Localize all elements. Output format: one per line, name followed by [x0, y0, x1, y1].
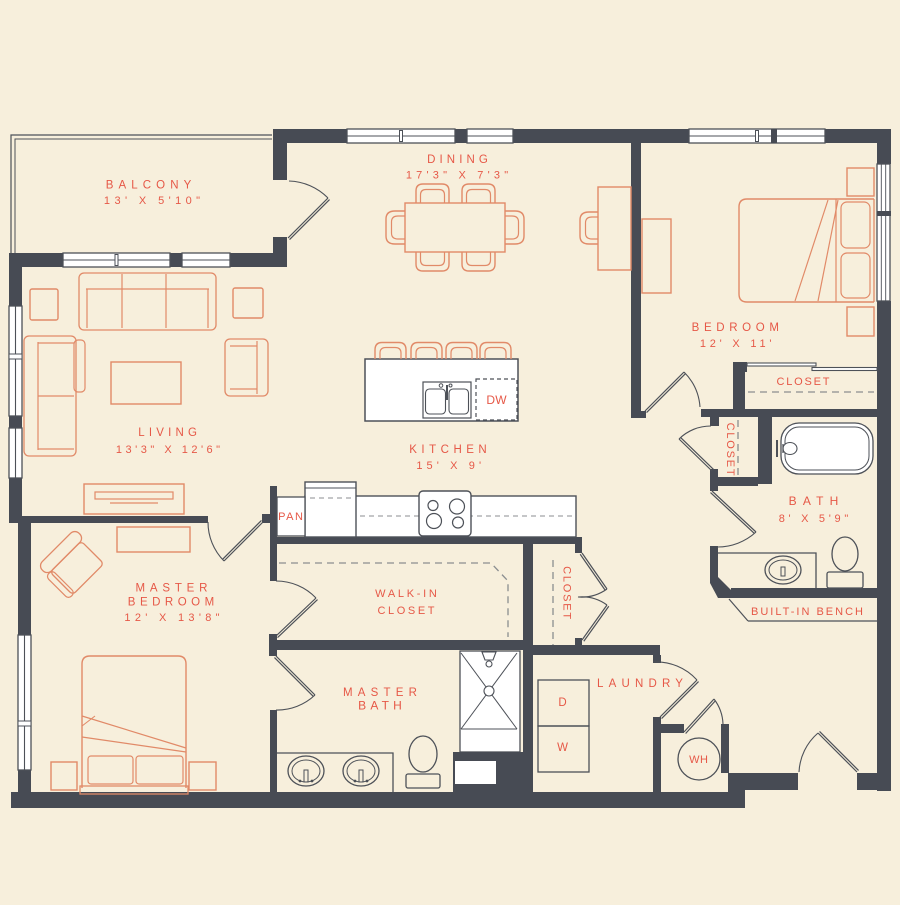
- svg-text:MASTER: MASTER: [136, 583, 213, 595]
- svg-text:BEDROOM: BEDROOM: [692, 322, 784, 334]
- svg-text:15' X 9': 15' X 9': [416, 460, 485, 472]
- svg-text:CLOSET: CLOSET: [776, 376, 831, 388]
- svg-text:CLOSET: CLOSET: [561, 566, 573, 621]
- svg-text:CLOSET: CLOSET: [377, 605, 437, 617]
- svg-text:LAUNDRY: LAUNDRY: [597, 678, 688, 690]
- svg-text:BUILT-IN BENCH: BUILT-IN BENCH: [751, 606, 865, 618]
- svg-text:LIVING: LIVING: [138, 427, 201, 439]
- svg-text:W: W: [557, 742, 568, 754]
- svg-text:13' X 5'10": 13' X 5'10": [104, 195, 205, 207]
- svg-text:MASTER: MASTER: [343, 687, 422, 699]
- svg-text:CLOSET: CLOSET: [724, 423, 736, 478]
- svg-text:KITCHEN: KITCHEN: [409, 444, 491, 456]
- svg-text:WH: WH: [689, 754, 708, 766]
- svg-text:BATH: BATH: [789, 494, 845, 508]
- svg-text:BEDROOM: BEDROOM: [128, 597, 219, 609]
- svg-text:DW: DW: [486, 393, 507, 407]
- svg-text:WALK-IN: WALK-IN: [375, 588, 439, 600]
- svg-text:12' X 13'8": 12' X 13'8": [124, 612, 223, 624]
- svg-text:13'3" X 12'6": 13'3" X 12'6": [116, 444, 224, 456]
- svg-text:17'3" X 7'3": 17'3" X 7'3": [406, 170, 512, 182]
- svg-text:8' X 5'9": 8' X 5'9": [779, 513, 852, 525]
- svg-text:BALCONY: BALCONY: [106, 180, 197, 192]
- svg-text:D: D: [558, 697, 567, 709]
- svg-text:PAN: PAN: [278, 511, 304, 523]
- svg-text:BATH: BATH: [358, 699, 406, 713]
- svg-text:12' X 11': 12' X 11': [700, 338, 776, 350]
- svg-text:DINING: DINING: [427, 154, 492, 166]
